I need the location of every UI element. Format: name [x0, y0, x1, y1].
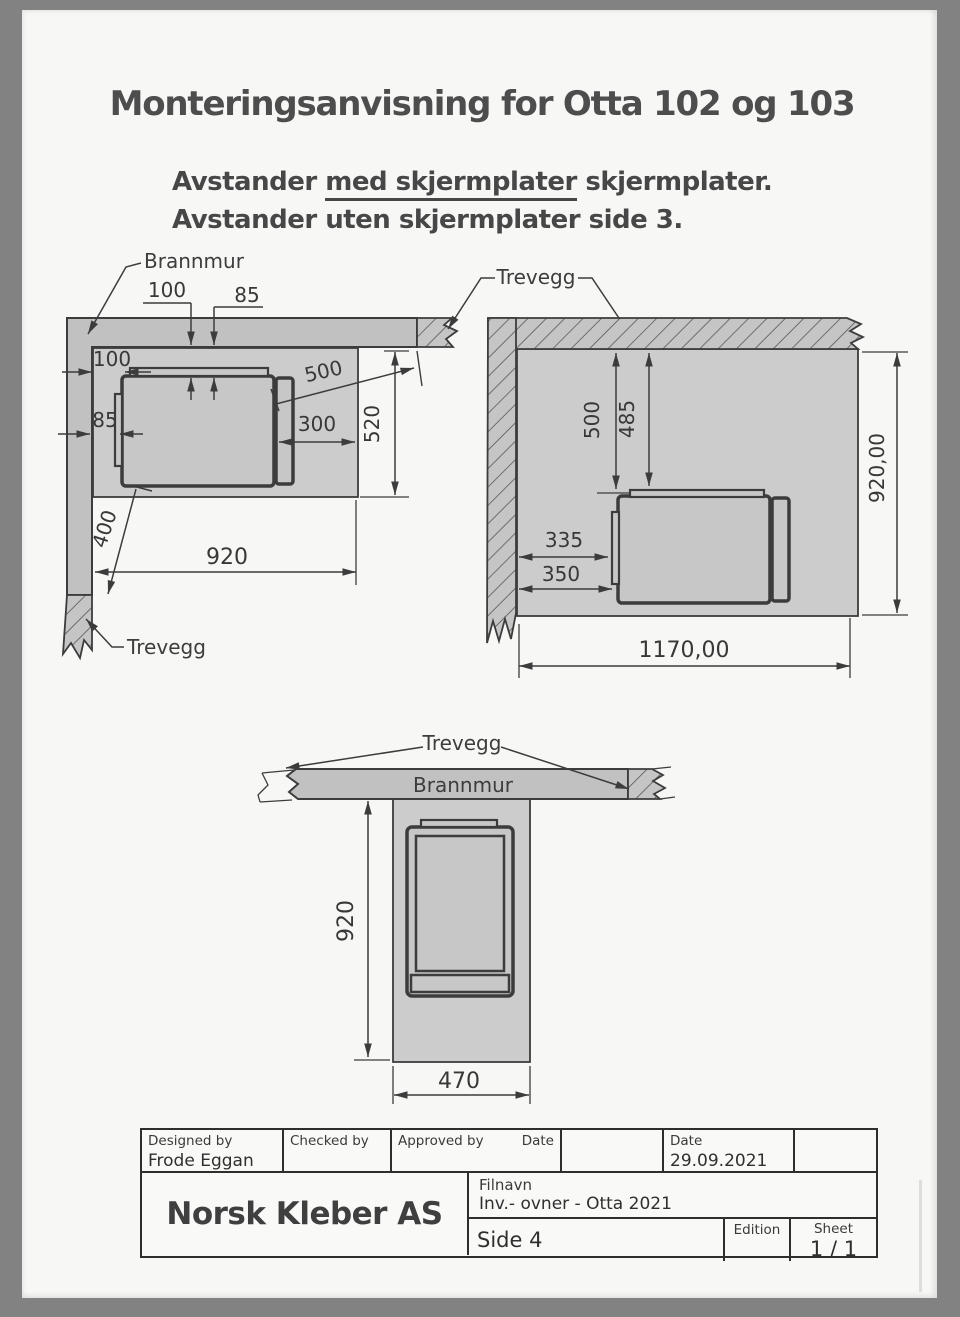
date-cell: Date 29.09.2021	[664, 1130, 795, 1171]
trevegg-label-top: Trevegg	[496, 265, 576, 289]
sheet-label: Sheet	[791, 1221, 876, 1237]
dim-920: 920	[206, 545, 248, 570]
brannmur-label: Brannmur	[144, 249, 245, 273]
filename-label: Filnavn	[479, 1176, 866, 1194]
dim-85-side: 85	[92, 408, 117, 432]
dim-500: 500	[580, 401, 604, 439]
trevegg-label-bottom: Trevegg	[422, 731, 502, 755]
wood-wall-top	[488, 318, 863, 349]
edition-label: Edition	[725, 1222, 789, 1238]
company-name: Norsk Kleber AS	[142, 1173, 469, 1255]
checked-by-cell: Checked by	[284, 1130, 392, 1171]
bottom-diagram-front-view: Trevegg Brannmur 920 470	[258, 731, 675, 1104]
date-label: Date	[670, 1133, 787, 1149]
page-ref: Side 4	[469, 1219, 725, 1261]
dim-350: 350	[542, 562, 580, 586]
wood-wall-left	[487, 318, 516, 643]
filename-cell: Filnavn Inv.- ovner - Otta 2021	[469, 1173, 876, 1219]
dim-1170-00: 1170,00	[639, 638, 730, 663]
wood-wall-hatch-right	[628, 769, 665, 799]
dim-520: 520	[360, 405, 384, 443]
sheet-cell: Sheet 1 / 1	[791, 1219, 876, 1261]
stove-front-panel	[416, 836, 504, 971]
dim-100-top: 100	[148, 278, 186, 302]
designed-by-cell: Designed by Frode Eggan	[142, 1130, 284, 1171]
edition-cell: Edition	[725, 1219, 791, 1261]
wood-wall-hatch-bottom-left	[63, 595, 92, 658]
title-block-right: Filnavn Inv.- ovner - Otta 2021 Side 4 E…	[469, 1173, 876, 1255]
side-shield-plate	[612, 512, 619, 584]
empty-cell-1	[562, 1130, 664, 1171]
date-value: 29.09.2021	[670, 1151, 787, 1171]
dim-920-bottom: 920	[334, 900, 359, 942]
designed-by-label: Designed by	[148, 1133, 276, 1149]
filename-value: Inv.- ovner - Otta 2021	[479, 1194, 866, 1214]
technical-drawing: Brannmur 100 85 100 85 500 300 520 920 4…	[0, 0, 960, 1317]
approved-by-label: Approved by	[398, 1133, 484, 1168]
dim-470: 470	[438, 1069, 480, 1094]
stove-door	[772, 498, 789, 601]
top-shield-plate	[421, 820, 497, 827]
brannmur-label-bottom: Brannmur	[413, 773, 514, 797]
empty-cell-2	[795, 1130, 876, 1171]
right-diagram-wood-wall: 500 485 335 350 920,00 1170,00	[487, 318, 908, 678]
sheet-value: 1 / 1	[791, 1237, 876, 1261]
checked-by-label: Checked by	[290, 1133, 384, 1149]
title-block-row2: Norsk Kleber AS Filnavn Inv.- ovner - Ot…	[142, 1173, 876, 1255]
dim-100-side: 100	[93, 347, 131, 371]
trevegg-label-bottom-left: Trevegg	[126, 635, 206, 659]
title-block-row3: Side 4 Edition Sheet 1 / 1	[469, 1219, 876, 1261]
approved-by-cell: Approved by Date	[392, 1130, 562, 1171]
designed-by-value: Frode Eggan	[148, 1151, 276, 1171]
stove-door	[276, 378, 293, 484]
stove-body	[122, 376, 274, 486]
scanned-document: { "page": { "title": "Monteringsanvisnin…	[0, 0, 960, 1317]
stove-body	[618, 496, 770, 603]
left-diagram-with-firewall: Brannmur 100 85 100 85 500 300 520 920 4…	[58, 249, 457, 659]
rear-shield-plate	[630, 490, 764, 497]
dim-920-00: 920,00	[865, 433, 889, 503]
dim-335: 335	[545, 528, 583, 552]
stove-door-band	[411, 975, 509, 992]
title-block: Designed by Frode Eggan Checked by Appro…	[140, 1128, 878, 1258]
wood-wall-hatch-top-right	[417, 318, 457, 347]
title-block-row1: Designed by Frode Eggan Checked by Appro…	[142, 1130, 876, 1173]
dim-300: 300	[298, 412, 336, 436]
dim-485: 485	[615, 400, 639, 438]
dim-85-top: 85	[234, 283, 259, 307]
approved-date-label: Date	[522, 1133, 554, 1168]
